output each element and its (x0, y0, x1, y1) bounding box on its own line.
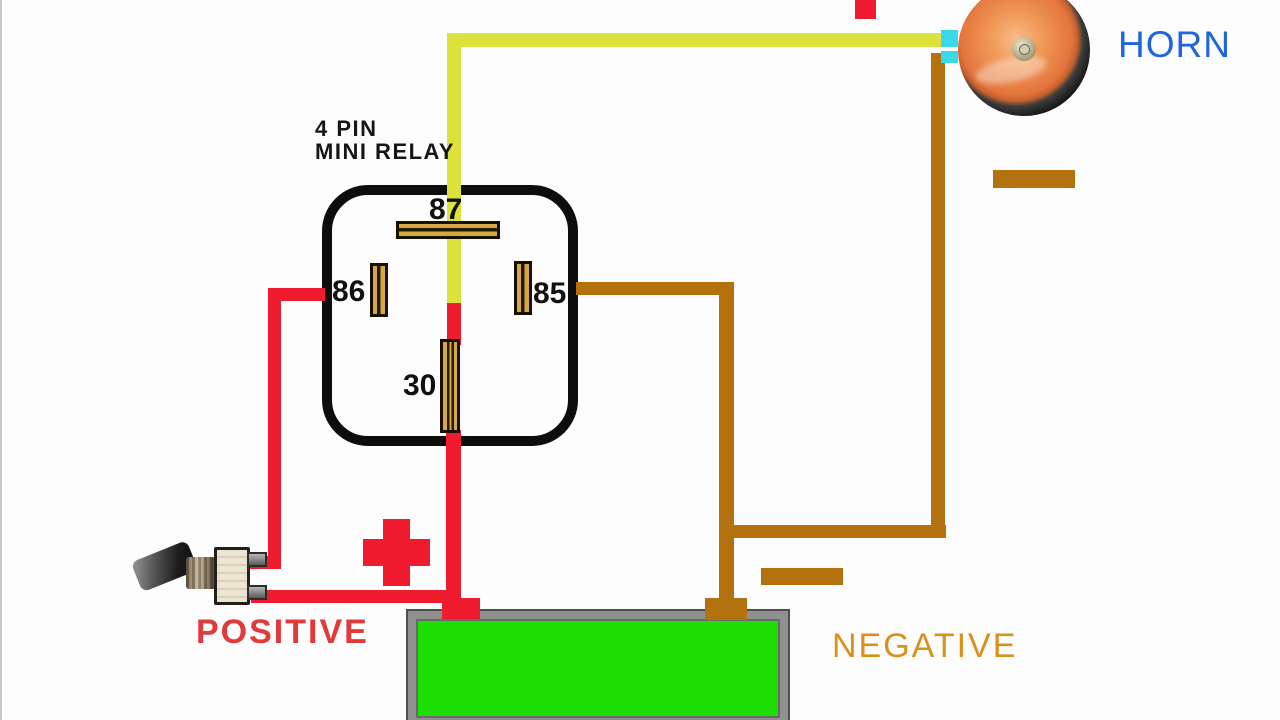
left-edge-line (0, 0, 2, 720)
top-red-mark (855, 0, 876, 19)
horn-center-dot (1019, 44, 1030, 55)
wiring-diagram-canvas: 87 86 85 30 4 PIN MINI RELAY HORN POSITI… (0, 0, 1280, 720)
wire-brown-horn-vertical (931, 53, 945, 537)
wire-red-pin30-vertical (446, 430, 461, 602)
switch-bushing (186, 557, 216, 589)
pin-85-label: 85 (533, 279, 566, 309)
pin-30-label: 30 (403, 371, 436, 401)
wire-red-switch-to-battery (251, 590, 453, 603)
wire-brown-horn-ground-horizontal (726, 525, 946, 538)
plus-symbol-horizontal-bar (363, 539, 430, 566)
relay-pin-86 (370, 263, 388, 317)
minus-symbol-battery (761, 568, 843, 585)
horn-label: HORN (1118, 24, 1231, 66)
switch-terminal-bottom (247, 585, 267, 600)
switch-terminal-top (247, 552, 267, 567)
wire-brown-vertical-to-battery (719, 282, 734, 602)
minus-symbol-horn (993, 170, 1075, 188)
wire-yellow-vertical (447, 33, 461, 308)
horn-terminal-top (941, 30, 958, 47)
wire-yellow-horizontal (447, 33, 944, 47)
toggle-switch (130, 535, 270, 615)
wire-brown-pin85-horizontal (576, 282, 734, 295)
battery-positive-terminal (442, 598, 480, 619)
relay-pin-30 (440, 339, 460, 433)
wire-red-pin86-vertical (268, 288, 281, 569)
switch-body (214, 547, 250, 605)
battery (408, 611, 788, 720)
horn-terminal-bottom (941, 51, 958, 63)
relay-title: 4 PIN MINI RELAY (315, 117, 455, 163)
pin-87-label: 87 (429, 195, 462, 225)
relay-pin-85 (514, 261, 532, 315)
pin-86-label: 86 (332, 277, 365, 307)
relay-title-line1: 4 PIN (315, 117, 455, 140)
battery-negative-terminal (705, 598, 747, 620)
relay-title-line2: MINI RELAY (315, 140, 455, 163)
negative-label: NEGATIVE (832, 627, 1017, 666)
positive-label: POSITIVE (196, 613, 369, 652)
